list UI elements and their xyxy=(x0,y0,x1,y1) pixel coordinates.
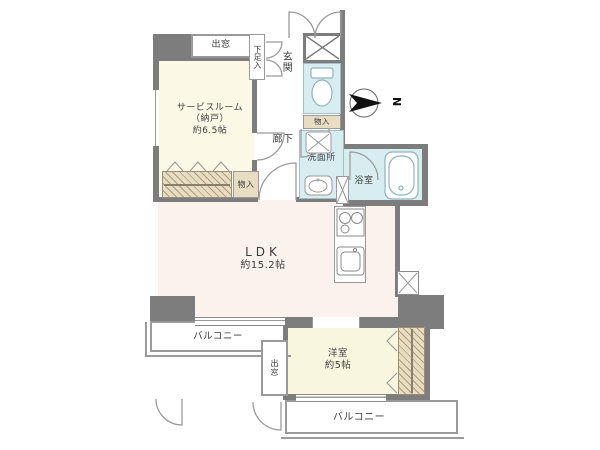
ldk-door xyxy=(259,163,296,200)
shoe-cabinet-label: 下足入 xyxy=(250,36,264,78)
wall xyxy=(150,296,195,321)
compass: N xyxy=(349,89,403,117)
western-room-name: 洋室 xyxy=(328,348,348,360)
bay-window-bottom-door xyxy=(253,402,281,430)
service-room-label: サービスルーム （納戸） 約6.5帖 xyxy=(166,97,254,143)
balcony-bottom-label: バルコニー xyxy=(300,411,418,425)
balcony-left-label: バルコニー xyxy=(158,330,278,344)
storage-hall-label: 物入 xyxy=(233,171,259,198)
western-room-label: 洋室 約5帖 xyxy=(296,344,380,376)
balcony-left-end-door xyxy=(156,399,182,425)
closet-service-rod xyxy=(164,184,230,186)
balcony-bottom-outer-line xyxy=(281,437,464,439)
pipe-space-right xyxy=(397,271,419,295)
ldk-name: LDK xyxy=(245,245,281,260)
service-room-sub: （納戸） xyxy=(191,114,229,125)
window-western-balcony xyxy=(296,394,386,402)
bay-window-bottom-label: 出窓 xyxy=(263,344,285,392)
balcony-left-stub xyxy=(145,322,147,357)
wall xyxy=(398,295,444,329)
storage-by-toilet-label: 物入 xyxy=(303,115,341,129)
service-room-name: サービスルーム xyxy=(177,103,243,114)
shaft-box xyxy=(303,33,343,63)
opening-western-door xyxy=(312,317,360,328)
compass-north-label: N xyxy=(390,97,403,106)
washroom-label: 洗面所 xyxy=(299,153,344,165)
bay-window-top-label: 出窓 xyxy=(191,36,251,56)
ldk-size: 約15.2帖 xyxy=(240,260,285,273)
wall xyxy=(422,144,428,206)
ldk-label: LDK 約15.2帖 xyxy=(193,243,333,275)
closet-western-rod xyxy=(411,329,413,393)
wall xyxy=(159,34,193,58)
compass-circle xyxy=(350,89,378,117)
kitchen-counter xyxy=(334,206,366,283)
room-toilet xyxy=(303,63,341,114)
entrance-label: 玄関 xyxy=(276,40,294,84)
wall xyxy=(340,144,428,149)
room-bath xyxy=(343,149,423,201)
window-ldk-balcony xyxy=(195,317,285,326)
corridor-label: 廊下 xyxy=(266,134,300,146)
window-service-left xyxy=(153,90,159,146)
bathroom-label: 浴室 xyxy=(348,176,380,188)
floor-plan: 出窓 下足入 玄関 物入 洗面所 浴室 廊下 サービスルーム （納戸） 約6.5… xyxy=(0,0,600,450)
compass-needle xyxy=(349,94,382,112)
service-room-size: 約6.5帖 xyxy=(193,126,228,137)
western-room-size: 約5帖 xyxy=(325,360,352,372)
